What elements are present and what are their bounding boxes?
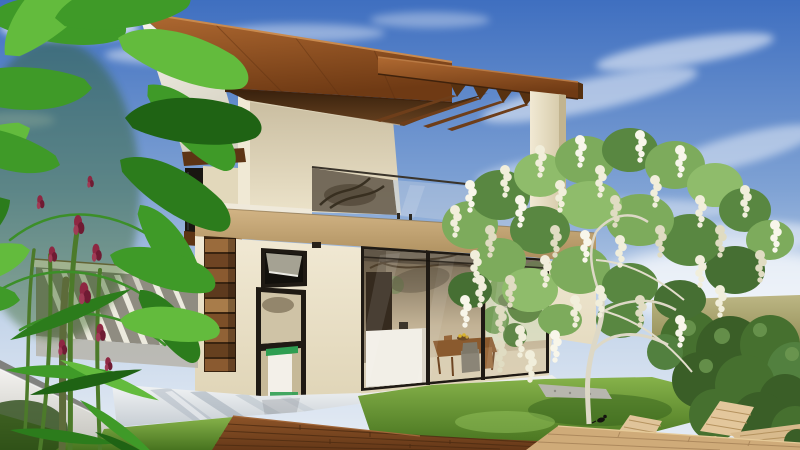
- awning-window: [261, 248, 307, 288]
- entry-door: [256, 287, 306, 413]
- scene-architectural-render: Daytime exterior rendering of a modern t…: [0, 0, 800, 450]
- stone-column: [204, 236, 236, 372]
